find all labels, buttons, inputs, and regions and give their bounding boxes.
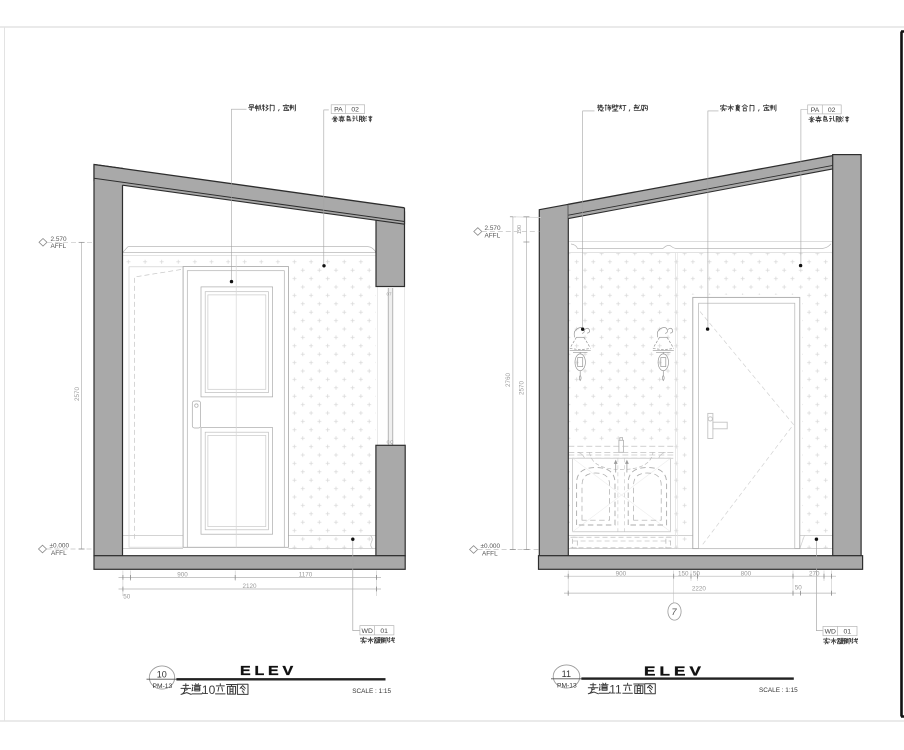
svg-text:10: 10 [202, 683, 216, 697]
svg-text:2220: 2220 [692, 585, 707, 592]
svg-text:900: 900 [177, 571, 188, 578]
svg-text:150: 150 [678, 570, 689, 577]
svg-text:190: 190 [517, 225, 523, 234]
svg-text:±0.000: ±0.000 [50, 543, 70, 550]
svg-text:02: 02 [828, 107, 836, 114]
svg-text:50: 50 [693, 570, 701, 577]
svg-text:900: 900 [616, 570, 627, 577]
svg-text:11: 11 [609, 682, 622, 696]
svg-text:2.570: 2.570 [485, 225, 501, 232]
svg-text:SCALE : 1:15: SCALE : 1:15 [759, 687, 798, 694]
svg-text:CQ: CQ [387, 440, 394, 445]
svg-text:WD: WD [825, 629, 836, 636]
svg-text:WD: WD [362, 628, 373, 635]
svg-text:AFFL: AFFL [51, 550, 67, 557]
svg-text:270: 270 [809, 570, 820, 577]
svg-text:01: 01 [844, 629, 852, 636]
svg-text:50: 50 [123, 593, 131, 600]
svg-text:50: 50 [795, 584, 803, 591]
svg-text:PA: PA [334, 107, 343, 114]
svg-text:PM-13: PM-13 [153, 683, 173, 690]
svg-text:2570: 2570 [519, 381, 526, 396]
svg-text:01: 01 [380, 628, 388, 635]
svg-text:AFFL: AFFL [51, 243, 67, 250]
svg-text:800: 800 [741, 570, 752, 577]
svg-text:PA: PA [811, 107, 820, 114]
svg-text:2570: 2570 [74, 387, 81, 402]
svg-text:2760: 2760 [505, 373, 512, 388]
svg-text:2.570: 2.570 [51, 236, 67, 243]
svg-text:AFFL: AFFL [482, 551, 498, 558]
svg-text:2120: 2120 [242, 583, 257, 590]
svg-text:1170: 1170 [299, 571, 313, 578]
svg-text:07: 07 [387, 292, 393, 297]
svg-text:PM-13: PM-13 [557, 682, 577, 689]
svg-text:ELEV: ELEV [644, 664, 705, 678]
svg-text:7: 7 [671, 607, 677, 618]
svg-text:SCALE : 1:15: SCALE : 1:15 [352, 688, 391, 695]
svg-text:±0.000: ±0.000 [481, 543, 501, 550]
svg-text:11: 11 [562, 669, 571, 679]
svg-text:10: 10 [157, 669, 167, 679]
svg-text:02: 02 [351, 107, 359, 114]
svg-text:ELEV: ELEV [240, 664, 297, 678]
svg-text:AFFL: AFFL [485, 232, 501, 239]
